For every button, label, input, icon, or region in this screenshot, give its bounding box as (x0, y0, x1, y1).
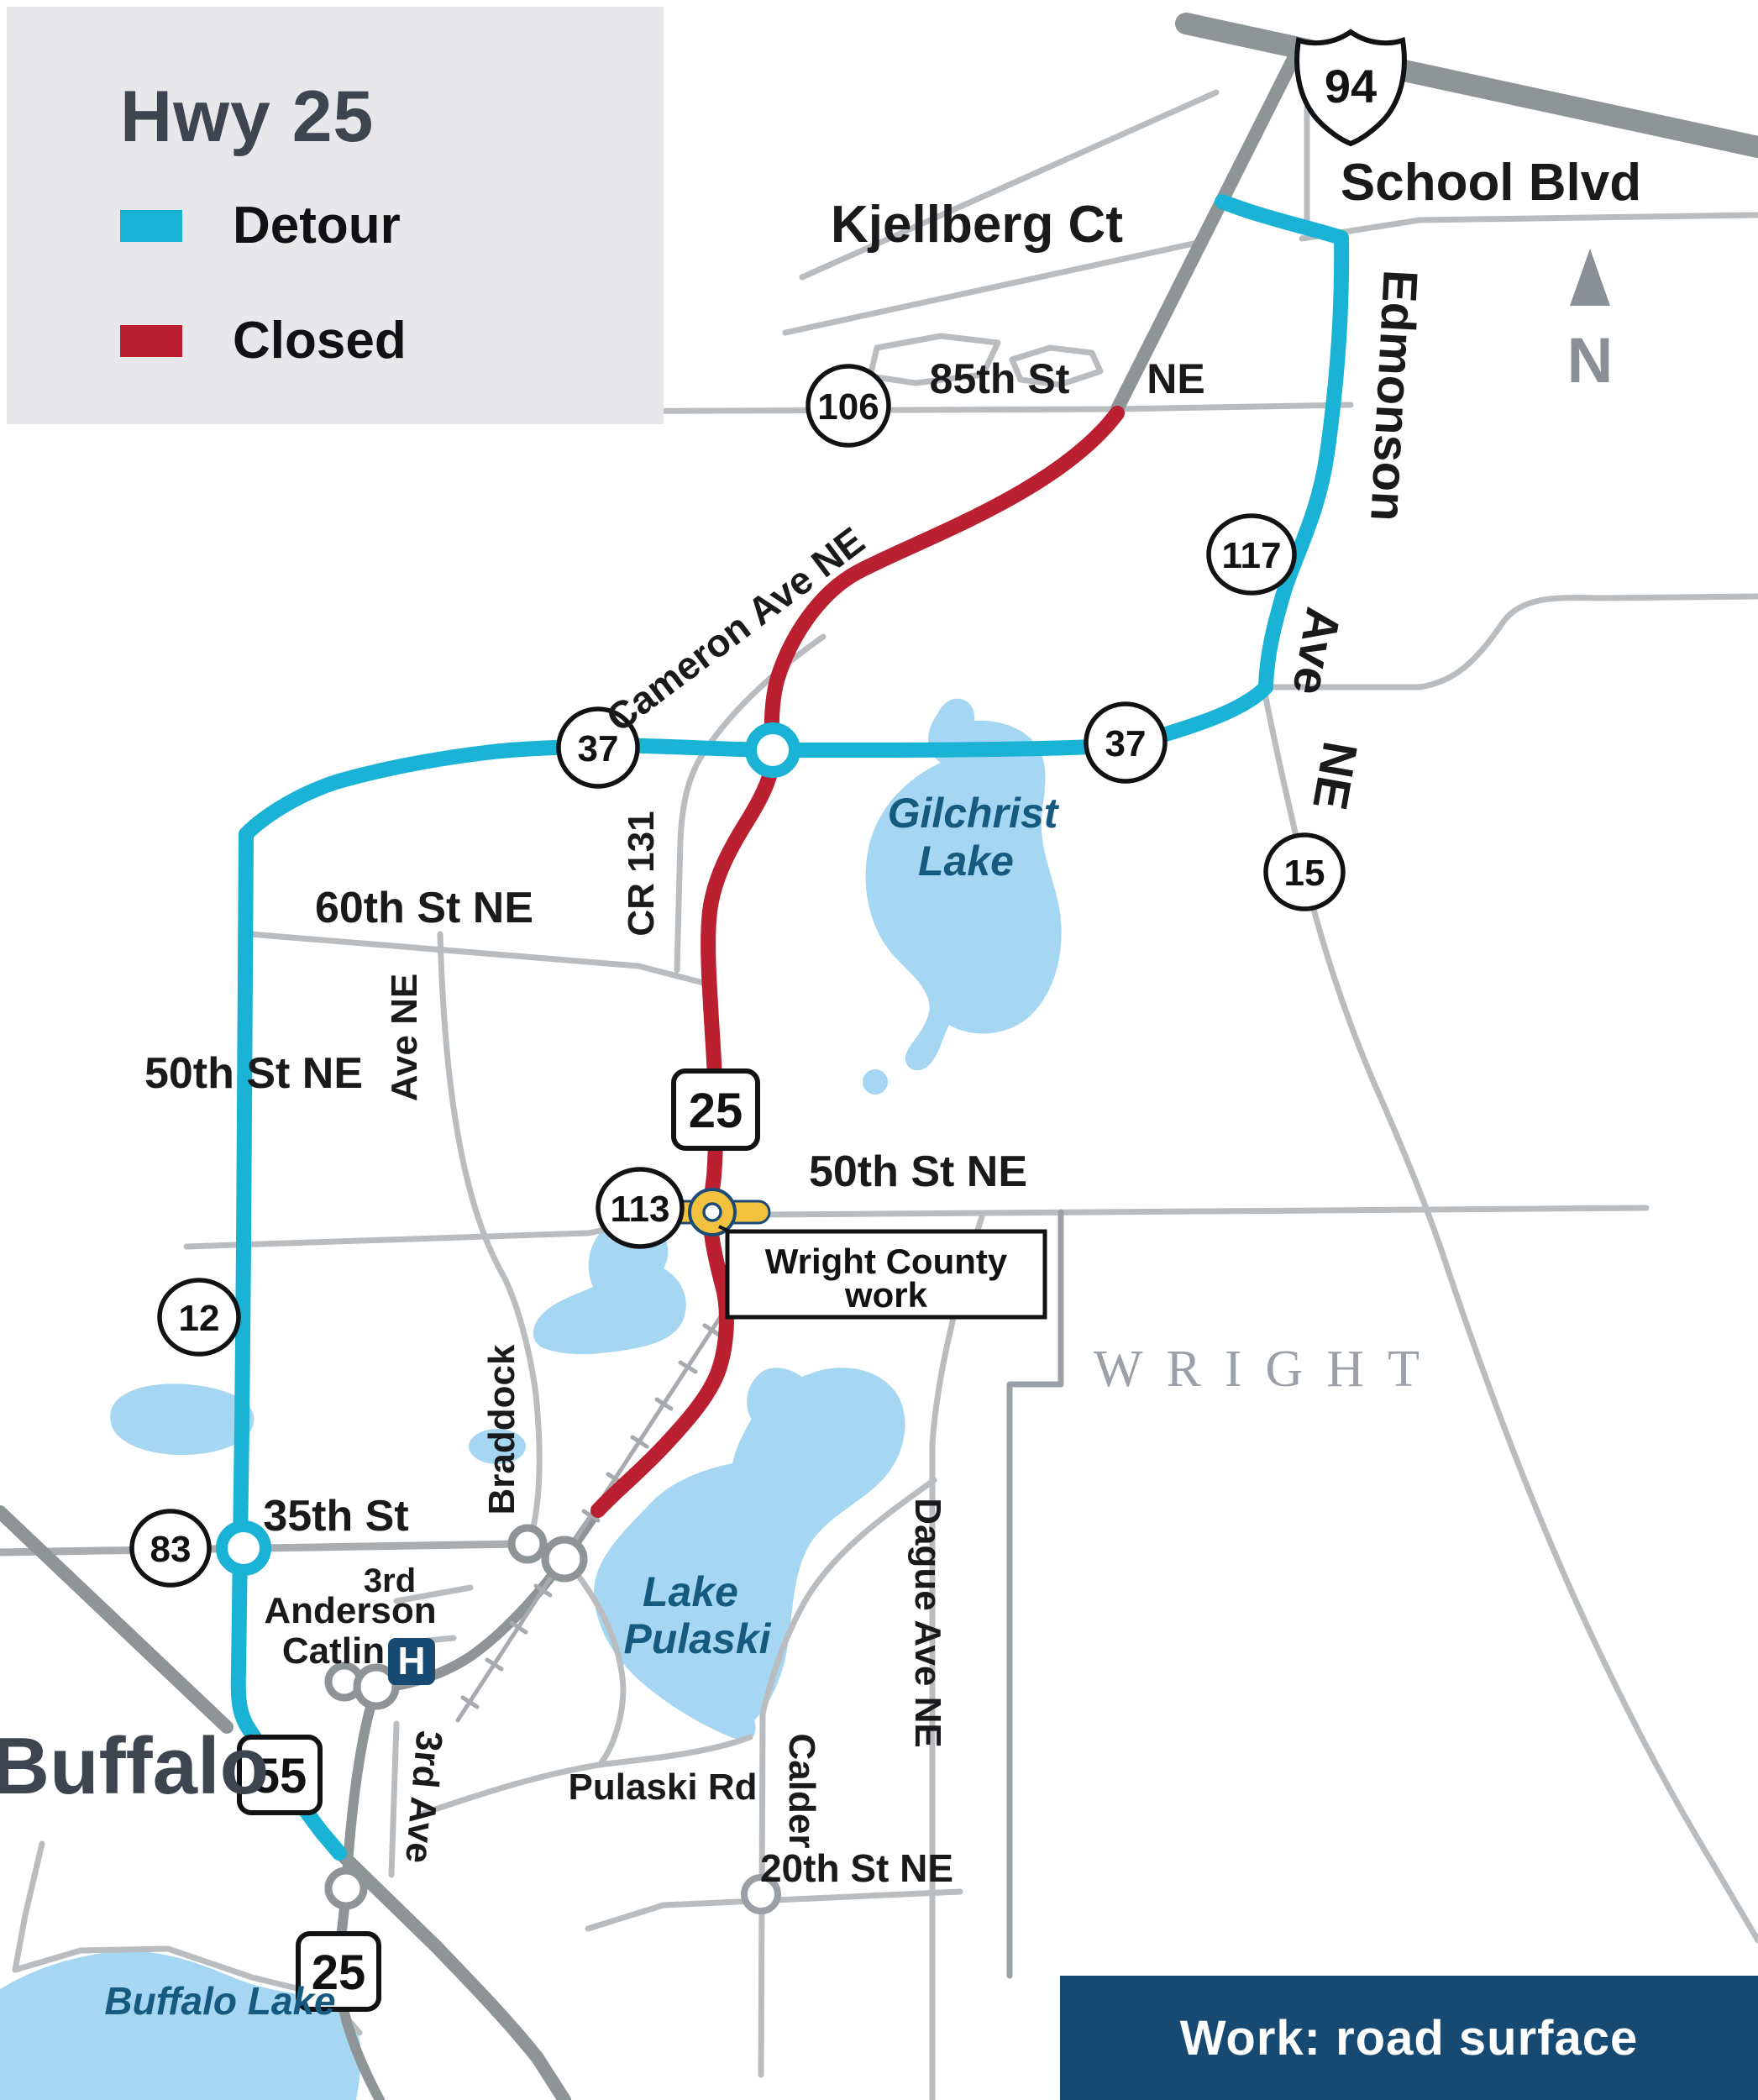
buffalo-west-road (15, 1844, 42, 1970)
legend-title: Hwy 25 (120, 76, 664, 159)
cr83-number: 83 (150, 1529, 192, 1570)
gilchrist-pond-dot (863, 1069, 888, 1095)
label-cameron-ave: Cameron Ave NE (598, 518, 873, 740)
lake-pulaski-shape (594, 1368, 905, 1740)
legend-row-detour: Detour (120, 196, 664, 255)
north-arrow: N (1567, 249, 1614, 396)
closed-label: Closed (233, 311, 407, 370)
label-kjellberg-ct: Kjellberg Ct (831, 196, 1123, 254)
label-60th-st: 60th St NE (315, 884, 533, 932)
label-braddock: Braddock (481, 1344, 522, 1515)
pond-west-of-12 (110, 1383, 254, 1455)
cr117-number: 117 (1222, 535, 1282, 576)
label-edmonson-ne: NE (1302, 738, 1367, 814)
north-arrow-icon (1570, 249, 1610, 306)
label-anderson: Anderson (264, 1590, 436, 1631)
label-85th-st: 85th St (930, 355, 1070, 402)
label-50th-west: 50th St NE (144, 1049, 363, 1098)
junction-35th-a (512, 1528, 543, 1560)
work-banner: Work: road surface (1060, 1976, 1758, 2100)
callout-line2: work (844, 1275, 928, 1315)
label-wright-county: WRIGHT (1094, 1341, 1443, 1398)
legend-panel: Hwy 25 Detour Closed (7, 7, 664, 424)
i94-road (1186, 24, 1758, 147)
label-85th-ne: NE (1147, 355, 1204, 402)
mn25-mid-number: 25 (689, 1084, 743, 1138)
label-school-blvd: School Blvd (1341, 154, 1641, 212)
label-calder: Calder (781, 1734, 822, 1849)
label-edmonson: Edmonson (1360, 269, 1428, 523)
hwy25-north-road (1117, 50, 1298, 409)
label-buffalo-city: Buffalo (0, 1721, 269, 1811)
label-gilchrist-2: Lake (918, 837, 1014, 885)
cr12-number: 12 (179, 1298, 220, 1339)
closed-swatch (120, 325, 182, 357)
label-pulaski-rd: Pulaski Rd (569, 1767, 758, 1808)
3rd-ave-road (391, 1724, 396, 1875)
i94-number: 94 (1325, 60, 1377, 113)
label-3rd-ave: 3rd Ave (397, 1729, 450, 1865)
county-line (1010, 1212, 1061, 1976)
hospital-letter: H (397, 1639, 425, 1683)
roundabout-35th-12 (222, 1526, 265, 1570)
roundabout-37-25 (751, 728, 795, 772)
cr15-number: 15 (1284, 853, 1325, 894)
cr106-number: 106 (817, 386, 879, 428)
hospital-marker: H (388, 1638, 435, 1685)
detour-map: Wright County work 94 25 55 25 106 117 3… (0, 0, 1758, 2100)
50th-st-east-road (655, 1208, 1646, 1215)
label-dague: Dague Ave NE (907, 1498, 948, 1748)
cr113-number: 113 (611, 1189, 670, 1230)
label-pulaski-1: Lake (643, 1568, 738, 1615)
label-50th-east: 50th St NE (809, 1147, 1027, 1196)
north-arrow-label: N (1567, 325, 1614, 396)
school-blvd-road (1302, 215, 1758, 239)
cr37-east-number: 37 (1105, 723, 1147, 764)
junction-35th-b (545, 1540, 584, 1578)
work-banner-text: Work: road surface (1180, 2010, 1639, 2066)
60th-st-road (249, 934, 710, 984)
label-braddock-ave-ne: Ave NE (384, 974, 425, 1101)
label-buffalo-lake: Buffalo Lake (104, 1979, 335, 2023)
cr37-west-number: 37 (578, 728, 619, 769)
label-20th-st: 20th St NE (760, 1846, 953, 1890)
detour-swatch (120, 210, 182, 242)
label-cr131: CR 131 (621, 811, 662, 936)
label-pulaski-2: Pulaski (623, 1615, 771, 1662)
label-gilchrist-1: Gilchrist (888, 790, 1060, 837)
label-35th-st: 35th St (263, 1492, 408, 1541)
work-zone-center (704, 1204, 721, 1221)
roundabout-hwy25-20th (328, 1871, 364, 1906)
label-catlin: Catlin (282, 1630, 385, 1672)
legend-row-closed: Closed (120, 311, 664, 370)
detour-label: Detour (233, 196, 401, 255)
